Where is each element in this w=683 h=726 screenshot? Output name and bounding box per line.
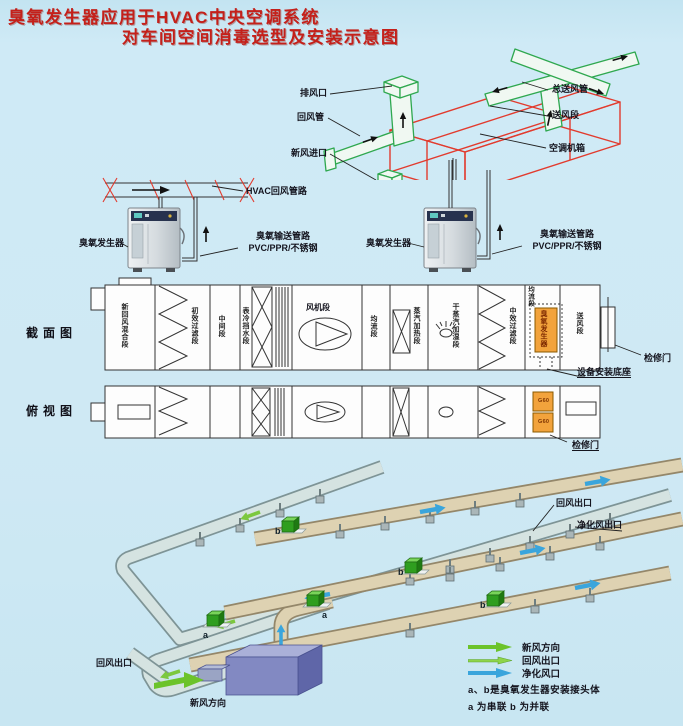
section-label-0: 新回风混合段 bbox=[121, 303, 128, 348]
label-ozone-pipe-right: 臭氧输送管路 PVC/PPR/不锈钢 bbox=[512, 228, 622, 252]
marker-b2: b bbox=[398, 567, 404, 577]
legend-row-fresh: 新风方向 bbox=[468, 641, 680, 653]
return-air-arrow-icon bbox=[468, 654, 514, 666]
label-supply-section: 送风段 bbox=[552, 110, 579, 120]
marker-b3: b bbox=[480, 600, 486, 610]
label-fresh-air-direction: 新风方向 bbox=[190, 698, 226, 708]
marker-b1: b bbox=[275, 526, 281, 536]
label-exhaust-outlet: 排风口 bbox=[300, 88, 327, 98]
legend-fresh-label: 新风方向 bbox=[522, 640, 560, 654]
label-main-supply-duct: 总送风管 bbox=[552, 84, 588, 94]
ozone-pipe-right-line2: PVC/PPR/不锈钢 bbox=[512, 240, 622, 252]
legend-row-purified: 净化风口 bbox=[468, 667, 680, 679]
ozone-generator-right bbox=[424, 208, 480, 272]
section-label-4: 风机段 bbox=[306, 303, 330, 312]
section-view-title: 截面图 bbox=[26, 324, 77, 341]
ozone-generator-left bbox=[128, 208, 184, 272]
legend-return-label: 回风出口 bbox=[522, 653, 560, 667]
section-label-10: 送风段 bbox=[576, 312, 583, 335]
label-return-outlet-left: 回风出口 bbox=[96, 658, 132, 668]
purified-air-arrow-icon bbox=[468, 667, 514, 679]
leader-access-door bbox=[615, 345, 641, 355]
label-return-duct: 回风管 bbox=[297, 112, 324, 122]
marker-a2: a bbox=[322, 610, 327, 620]
label-ozone-generator-left: 臭氧发生器 bbox=[79, 238, 124, 248]
ahu-isometric-diagram bbox=[290, 30, 683, 180]
label-access-door-plan: 检修门 bbox=[572, 440, 599, 451]
label-hvac-return-line: HVAC回风管路 bbox=[246, 186, 307, 196]
section-view-diagram bbox=[85, 275, 683, 380]
section-label-3: 表冷挡水段 bbox=[242, 307, 249, 345]
label-fresh-air-inlet: 新风进口 bbox=[291, 148, 327, 158]
ozone-pipe-right-line1: 臭氧输送管路 bbox=[512, 228, 622, 240]
plan-view-title: 俯视图 bbox=[26, 402, 77, 419]
section-label-8: 中效过滤段 bbox=[509, 307, 516, 345]
section-label-2: 中间段 bbox=[218, 315, 225, 338]
ozone-pipe-left-line2: PVC/PPR/不锈钢 bbox=[228, 242, 338, 254]
hvac-return-duct bbox=[103, 178, 254, 202]
legend: 新风方向 回风出口 净化风口 a、b是臭氧发生器安装接头体 a 为串联 b 为并… bbox=[468, 641, 680, 713]
page: 臭氧发生器应用于HVAC中央空调系统 对车间空间消毒选型及安装示意图 bbox=[0, 0, 683, 726]
label-mounting-base: 设备安装底座 bbox=[577, 367, 631, 378]
ozone-unit-tag-1: G60 bbox=[538, 398, 549, 404]
ozone-unit-tag-2: G60 bbox=[538, 419, 549, 425]
label-return-outlet-right: 回风出口 bbox=[556, 498, 592, 508]
section-label-6: 蒸汽加热段 bbox=[413, 307, 420, 345]
label-purified-outlet: 净化风出口 bbox=[577, 520, 622, 530]
label-ozone-generator-right: 臭氧发生器 bbox=[366, 238, 411, 248]
section-label-5: 均流段 bbox=[370, 315, 377, 338]
ozone-pipe-left-line1: 臭氧输送管路 bbox=[228, 230, 338, 242]
plan-box bbox=[105, 386, 600, 438]
section-label-9: 均流段 bbox=[526, 286, 533, 307]
legend-purified-label: 净化风口 bbox=[522, 666, 560, 680]
section-label-7: 干蒸汽加湿段 bbox=[452, 303, 459, 348]
label-access-door-side: 检修门 bbox=[644, 353, 671, 363]
legend-note-2: a 为串联 b 为并联 bbox=[468, 699, 680, 713]
section-label-1: 初效过滤段 bbox=[191, 307, 198, 345]
marker-a1: a bbox=[203, 630, 208, 640]
ozone-generators-band bbox=[0, 160, 683, 285]
supply-ducts bbox=[190, 465, 682, 665]
section-ozone-box-label: 臭氧发生器 bbox=[540, 310, 547, 348]
fresh-air-arrow-icon bbox=[468, 641, 514, 653]
label-ozone-pipe-left: 臭氧输送管路 PVC/PPR/不锈钢 bbox=[228, 230, 338, 254]
legend-note-1: a、b是臭氧发生器安装接头体 bbox=[468, 682, 680, 696]
label-ahu-cabinet: 空调机箱 bbox=[549, 143, 585, 153]
legend-row-return: 回风出口 bbox=[468, 654, 680, 666]
